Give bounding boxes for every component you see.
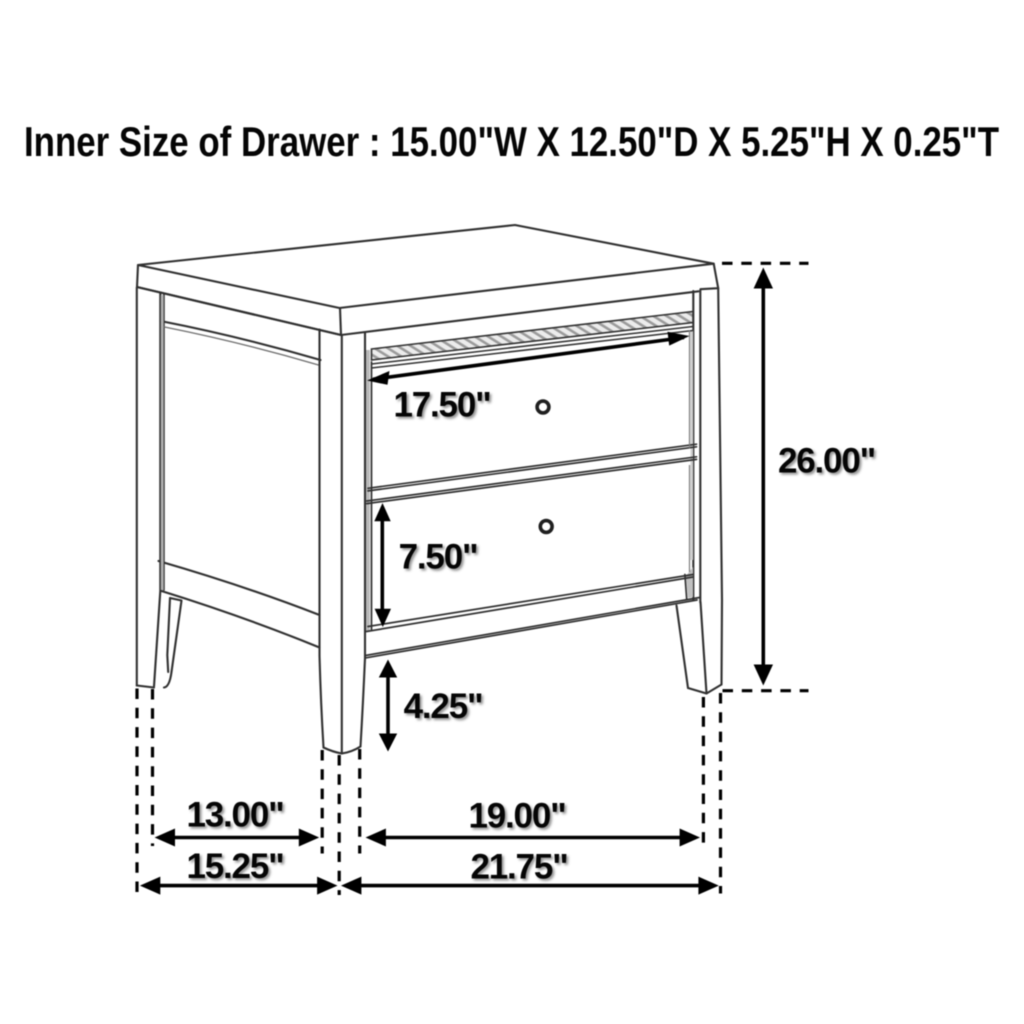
svg-text:26.00": 26.00"	[778, 442, 875, 481]
svg-text:21.75": 21.75"	[471, 848, 568, 887]
svg-text:Inner Size of Drawer : 15.00"W: Inner Size of Drawer : 15.00"W X 12.50"D…	[24, 118, 999, 165]
svg-text:4.25": 4.25"	[404, 687, 483, 726]
svg-text:19.00": 19.00"	[469, 797, 566, 836]
svg-text:15.25": 15.25"	[187, 847, 284, 886]
svg-text:17.50": 17.50"	[394, 386, 491, 425]
svg-text:13.00": 13.00"	[187, 796, 284, 835]
svg-text:7.50": 7.50"	[399, 538, 478, 577]
